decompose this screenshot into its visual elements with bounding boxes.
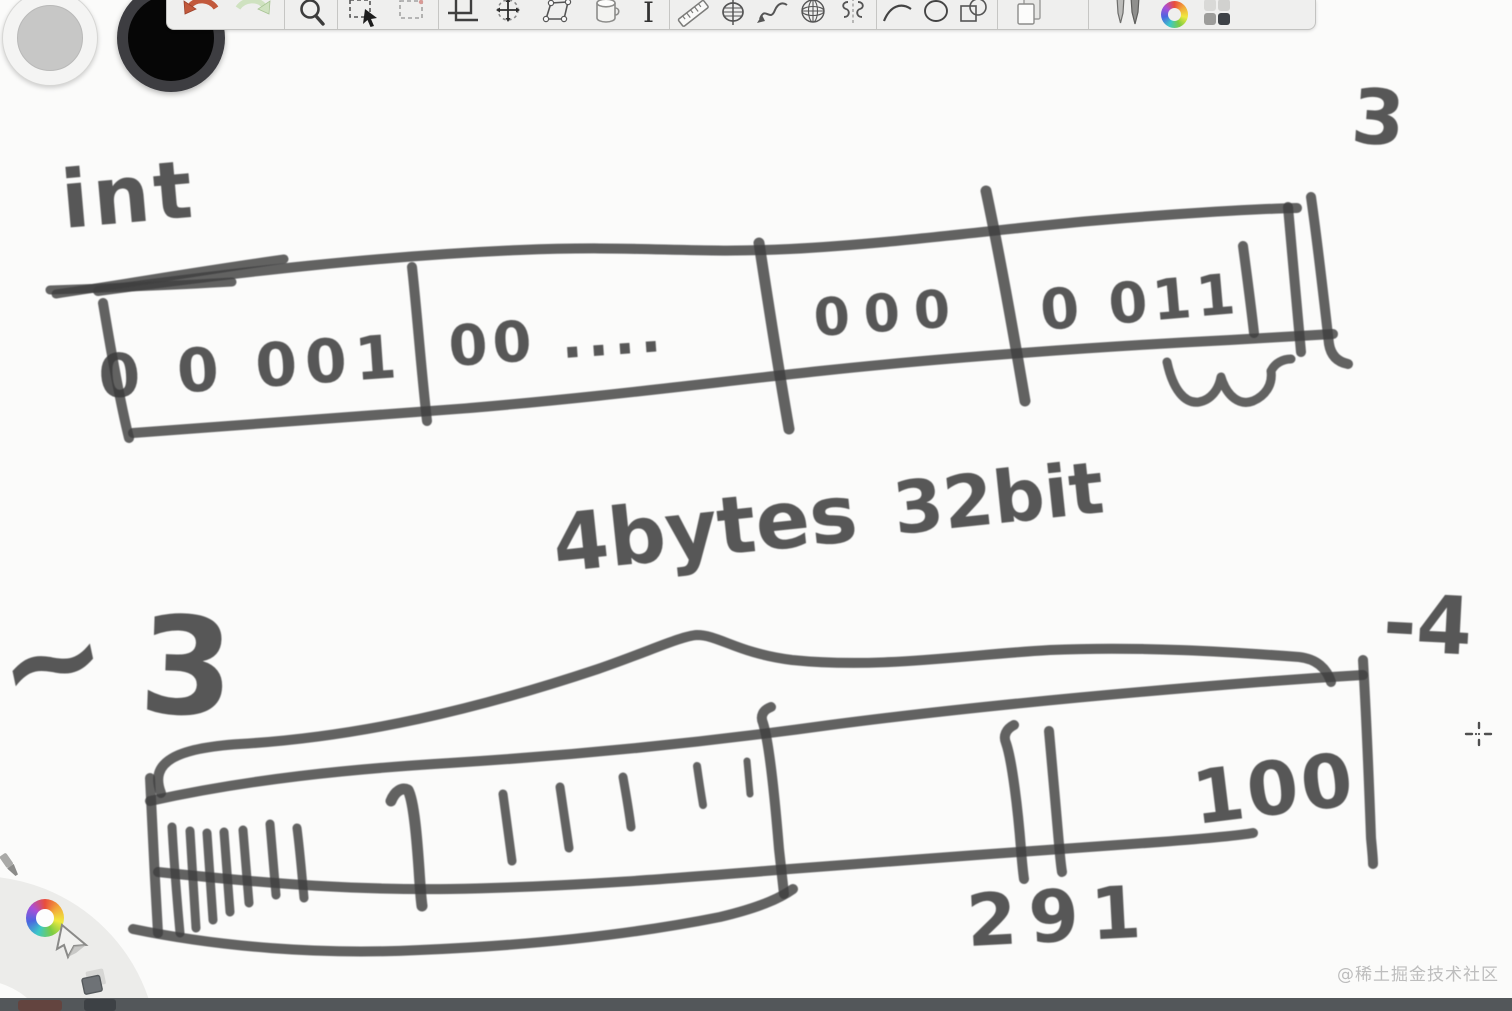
sketch-exponent-top: 3 — [1349, 71, 1408, 163]
shape-boolean-tool-button[interactable] — [957, 0, 991, 29]
sketch-approx-value: 3 — [137, 587, 236, 747]
brush-tool-icon[interactable] — [0, 850, 28, 884]
sketch-bottom-value: 291 — [964, 869, 1154, 963]
ellipse-tool-button[interactable] — [919, 0, 953, 29]
undo-button[interactable] — [183, 0, 219, 29]
color-wheel-icon — [1161, 1, 1188, 28]
quadrilateral-nodes-icon — [541, 0, 575, 29]
swatch-cell — [1218, 13, 1230, 25]
zoom-tool-button[interactable] — [296, 0, 328, 29]
mirror-s-icon — [836, 0, 870, 29]
sketch-tilde: ~ — [0, 575, 121, 746]
sphere-lines-icon — [718, 0, 750, 29]
brushes-button[interactable] — [1111, 0, 1147, 29]
sketch-bits-caption: 32bit — [889, 445, 1107, 551]
toolbar-separator — [997, 0, 998, 30]
sketch-bytes-caption: 4bytes — [548, 467, 861, 591]
crop-icon — [447, 0, 479, 29]
watermark: @稀土掘金技术社区 — [1337, 960, 1499, 985]
sketch-right-cell-value: 100 — [1188, 737, 1361, 842]
app-window: int 3 0 0 001 00 .... 000 0 011 4bytes 3… — [0, 0, 1512, 1011]
sketch-cell-1: 0 0 001 — [96, 322, 407, 413]
sketch-cell-4: 0 011 — [1038, 262, 1243, 344]
color-wheel-button[interactable] — [1161, 1, 1188, 30]
ruler-guide-button[interactable] — [676, 0, 710, 29]
free-select-tool-button[interactable] — [396, 0, 428, 29]
layers-button[interactable] — [1012, 0, 1046, 29]
wave-pen-icon — [756, 0, 790, 29]
toolbar-separator — [337, 0, 338, 30]
toolbar-separator — [876, 0, 877, 30]
toolbar-separator — [669, 0, 670, 30]
swatch-grid-icon — [1204, 0, 1230, 25]
color-swatches-button[interactable] — [1204, 0, 1230, 29]
sphere-guide-button[interactable] — [718, 0, 750, 29]
corner-radial-menu — [0, 846, 250, 1011]
mesh-globe-guide-button[interactable] — [796, 0, 830, 29]
layers-pages-icon — [1012, 0, 1046, 29]
ruler-icon — [676, 0, 710, 29]
toolbar-separator — [284, 0, 285, 30]
toolbar-separator — [1088, 0, 1089, 30]
overlapping-shapes-icon — [957, 0, 991, 29]
cylinder-icon — [591, 0, 623, 29]
move-icon — [493, 0, 527, 29]
corner-cursor-icon[interactable] — [54, 923, 92, 963]
arc-tool-button[interactable] — [881, 0, 915, 29]
crop-tool-button[interactable] — [447, 0, 479, 29]
curve-guide-button[interactable] — [756, 0, 790, 29]
fill-cylinder-tool-button[interactable] — [591, 0, 623, 29]
sketch-exponent-bottom: -4 — [1381, 576, 1475, 674]
rect-select-tool-button[interactable] — [348, 0, 382, 29]
secondary-color-fill — [17, 5, 83, 71]
crosshair-cursor — [1464, 719, 1494, 749]
lower-band-strokes — [133, 635, 1373, 951]
sketch-int-label: int — [58, 143, 200, 247]
ellipse-icon — [919, 0, 953, 29]
magnifier-icon — [296, 0, 328, 29]
undo-icon — [183, 0, 219, 27]
brushes-icon — [1111, 0, 1147, 29]
swatch-cell — [1218, 0, 1230, 11]
text-tool-icon: I — [637, 0, 661, 29]
redo-icon — [235, 0, 271, 27]
sketch-cell-2: 00 .... — [446, 300, 668, 380]
toolbar-separator — [438, 0, 439, 30]
corner-distort-tool-button[interactable] — [541, 0, 575, 29]
statusbar-gray-item — [84, 999, 116, 1011]
status-bar — [0, 998, 1512, 1011]
main-toolbar: I — [166, 0, 1316, 30]
swatch-cell — [1204, 0, 1216, 11]
statusbar-red-item — [18, 1000, 62, 1011]
corner-layers-icon[interactable] — [76, 966, 116, 1002]
redo-button[interactable] — [235, 0, 271, 29]
marquee-icon — [396, 0, 428, 29]
marquee-cursor-icon — [348, 0, 382, 29]
sketch-cell-3: 000 — [812, 279, 966, 349]
mesh-globe-icon — [796, 0, 830, 29]
swatch-cell — [1204, 13, 1216, 25]
text-tool-button[interactable]: I — [637, 0, 661, 29]
arc-icon — [881, 0, 915, 29]
move-tool-button[interactable] — [493, 0, 527, 29]
svg-text:I: I — [643, 0, 654, 29]
mirror-symmetry-button[interactable] — [836, 0, 870, 29]
